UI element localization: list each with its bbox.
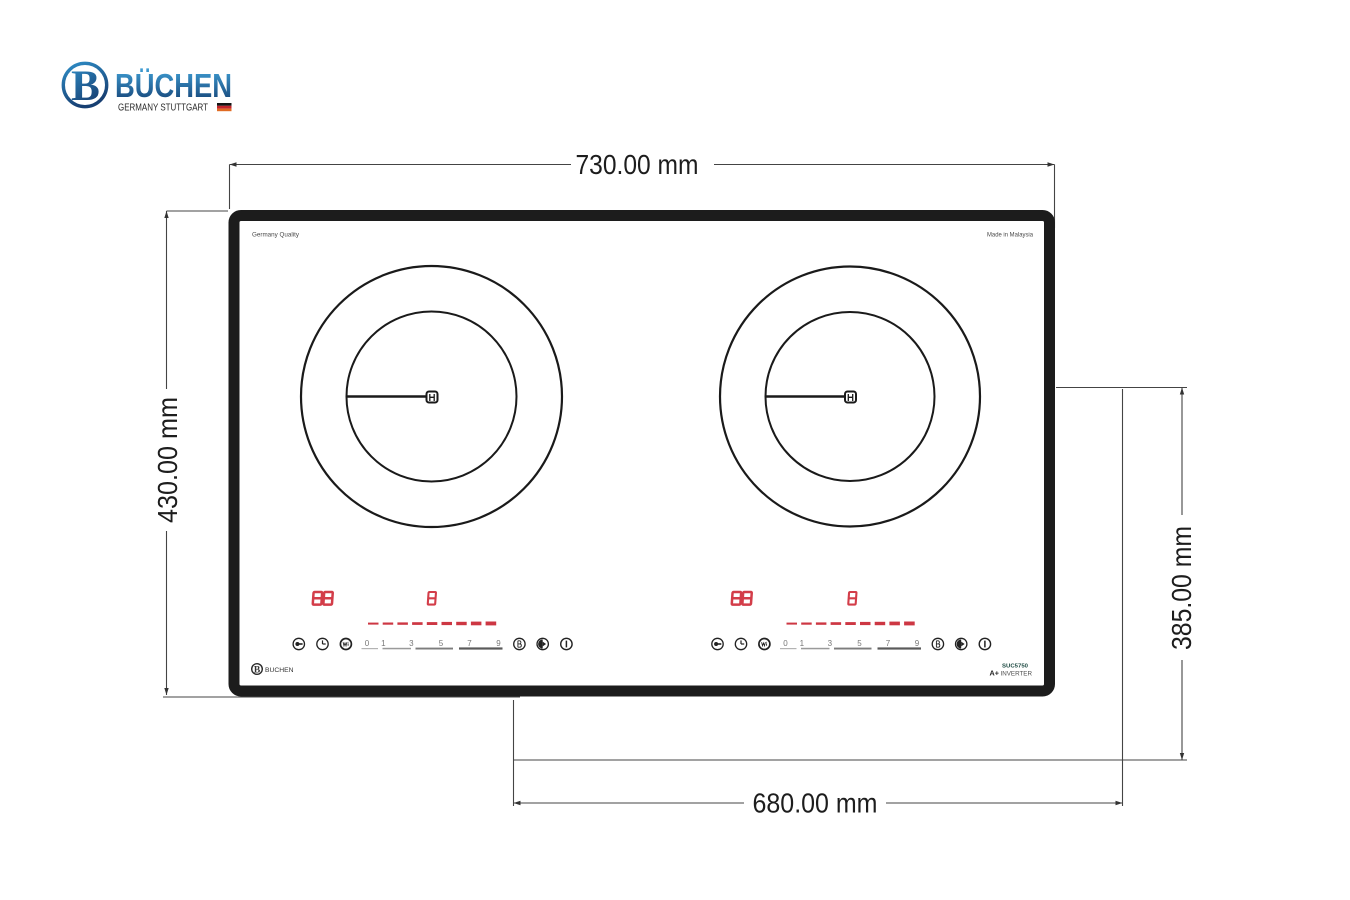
- svg-text:SUC5750: SUC5750: [1002, 664, 1028, 670]
- svg-text:Germany Quality: Germany Quality: [252, 232, 300, 239]
- svg-text:1: 1: [800, 639, 805, 648]
- svg-text:B: B: [71, 63, 100, 110]
- svg-text:0: 0: [365, 639, 370, 648]
- svg-text:Made in Malaysia: Made in Malaysia: [987, 232, 1033, 239]
- svg-text:385.00 mm: 385.00 mm: [1166, 526, 1197, 650]
- svg-text:5: 5: [857, 639, 862, 648]
- svg-text:680.00 mm: 680.00 mm: [753, 788, 878, 819]
- svg-text:430.00 mm: 430.00 mm: [152, 397, 183, 523]
- svg-text:A+: A+: [990, 669, 999, 678]
- svg-text:3: 3: [409, 639, 414, 648]
- svg-text:BUCHEN: BUCHEN: [265, 667, 294, 674]
- svg-text:7: 7: [886, 639, 891, 648]
- svg-text:1: 1: [381, 639, 386, 648]
- svg-text:9: 9: [915, 639, 920, 648]
- svg-text:BÜCHEN: BÜCHEN: [115, 67, 232, 104]
- svg-text:0: 0: [783, 639, 788, 648]
- svg-text:9: 9: [496, 639, 501, 648]
- svg-text:B: B: [254, 666, 261, 676]
- svg-text:3: 3: [828, 639, 833, 648]
- svg-text:7: 7: [467, 639, 472, 648]
- svg-text:GERMANY STUTTGART: GERMANY STUTTGART: [118, 103, 208, 114]
- svg-text:INVERTER: INVERTER: [1001, 671, 1033, 678]
- svg-text:5: 5: [439, 639, 444, 648]
- svg-text:730.00 mm: 730.00 mm: [576, 149, 699, 180]
